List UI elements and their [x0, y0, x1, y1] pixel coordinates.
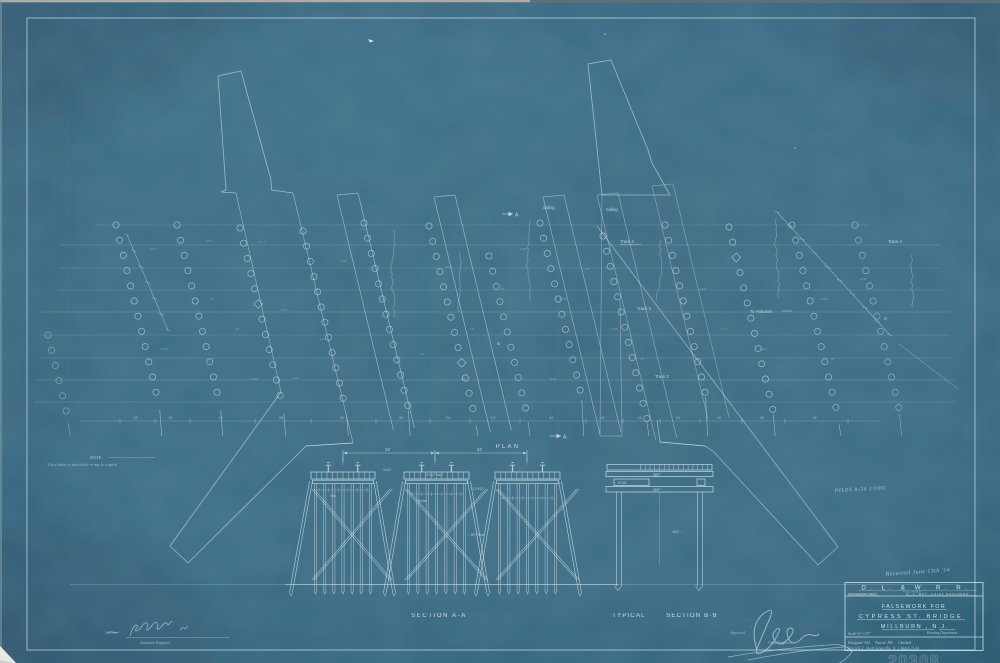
svg-text:3-6x8: 3-6x8	[160, 347, 168, 351]
svg-text:c to c: c to c	[360, 227, 368, 231]
svg-text:24′0″: 24′0″	[460, 377, 468, 381]
svg-text:16′: 16′	[830, 357, 834, 361]
svg-text:NOTE: NOTE	[89, 455, 102, 460]
svg-text:Track 3: Track 3	[637, 306, 651, 311]
svg-text:34': 34'	[549, 416, 554, 420]
svg-text:24′0″: 24′0″	[520, 247, 528, 251]
svg-text:20308: 20308	[888, 653, 940, 663]
svg-text:26': 26'	[717, 416, 722, 420]
svg-text:MILLBURN , N.J.: MILLBURN , N.J.	[881, 624, 949, 630]
svg-text:CYPRESS ST. BRIDGE: CYPRESS ST. BRIDGE	[859, 614, 963, 620]
svg-text:Track 2: Track 2	[655, 374, 669, 379]
svg-text:38′0″: 38′0″	[653, 473, 661, 477]
svg-text:Correct: Correct	[105, 631, 118, 635]
svg-text:24': 24'	[446, 416, 451, 420]
svg-text:Track 4: Track 4	[620, 239, 634, 244]
svg-text:16′: 16′	[235, 327, 239, 331]
svg-text:34′: 34′	[385, 447, 391, 452]
svg-text:8-30: 8-30	[550, 377, 557, 381]
svg-text:24′0″: 24′0″	[205, 239, 213, 243]
svg-text:5 sp: 5 sp	[330, 494, 336, 498]
svg-text:26': 26'	[279, 416, 284, 420]
svg-text:24′0″: 24′0″	[150, 247, 158, 251]
svg-text:Scale ⅜″=1′0″: Scale ⅜″=1′0″	[848, 632, 871, 636]
svg-text:8-30: 8-30	[560, 297, 567, 301]
svg-text:Chief Engineer: Chief Engineer	[768, 640, 793, 645]
svg-text:24': 24'	[638, 416, 643, 420]
svg-text:26': 26'	[340, 416, 345, 420]
svg-text:16′: 16′	[500, 287, 504, 291]
svg-text:West of E. L. North Jersey Div: West of E. L. North Jersey Div. N. J. Ma…	[847, 646, 919, 650]
svg-text:SECTION A-A: SECTION A-A	[411, 613, 467, 619]
svg-text:16′: 16′	[380, 297, 384, 301]
svg-text:8-30: 8-30	[860, 277, 867, 281]
svg-text:24': 24'	[813, 416, 818, 420]
svg-text:Track 4: Track 4	[888, 239, 902, 244]
svg-text:Carry timber or much better or: Carry timber or much better or may be re…	[48, 463, 117, 467]
svg-text:12″x12″ cap: 12″x12″ cap	[425, 473, 442, 477]
svg-text:24': 24'	[676, 416, 681, 420]
svg-text:24′0″: 24′0″	[320, 337, 328, 341]
svg-text:24′0″: 24′0″	[292, 376, 300, 380]
svg-text:Assistant Engineer: Assistant Engineer	[139, 640, 171, 645]
svg-text:24′0″: 24′0″	[340, 259, 348, 263]
svg-text:TYPICAL: TYPICAL	[612, 613, 645, 619]
svg-text:8″x16″: 8″x16″	[618, 481, 628, 485]
svg-text:Erecting Department: Erecting Department	[926, 631, 958, 635]
svg-text:24′0″: 24′0″	[445, 265, 453, 269]
svg-text:Approved: Approved	[729, 631, 745, 635]
svg-text:24′0″: 24′0″	[700, 287, 708, 291]
svg-text:G. J. RAY, CHIEF ENGINEER: G. J. RAY, CHIEF ENGINEER	[906, 592, 969, 596]
svg-text:3-6x8: 3-6x8	[610, 327, 618, 331]
svg-text:24': 24'	[169, 416, 174, 420]
svg-text:c to c: c to c	[258, 240, 266, 244]
svg-text:16′: 16′	[640, 357, 644, 361]
svg-text:16′: 16′	[470, 327, 474, 331]
svg-text:3-2″x12″: 3-2″x12″	[472, 487, 485, 491]
svg-text:16′: 16′	[210, 297, 214, 301]
svg-text:4′x12″: 4′x12″	[383, 468, 393, 472]
svg-text:24′0″: 24′0″	[760, 347, 768, 351]
svg-text:To Hoboken: To Hoboken	[750, 309, 773, 314]
svg-text:Siding: Siding	[606, 207, 618, 212]
svg-text:24': 24'	[491, 416, 496, 420]
svg-text:34′: 34′	[477, 447, 483, 452]
svg-text:24': 24'	[601, 416, 606, 420]
svg-text:B: B	[884, 316, 887, 321]
svg-text:16′: 16′	[420, 352, 424, 356]
svg-text:c to c: c to c	[720, 327, 728, 331]
svg-text:PLAN: PLAN	[496, 444, 520, 450]
svg-text:SECTION B-B: SECTION B-B	[666, 613, 718, 619]
svg-text:FALSEWORK FOR: FALSEWORK FOR	[882, 604, 946, 610]
svg-text:26': 26'	[760, 416, 765, 420]
svg-text:→ 30′ Piles: → 30′ Piles	[466, 533, 484, 537]
svg-text:35′0″: 35′0″	[280, 308, 288, 312]
svg-text:Designed AJS Traced P.B.: Designed AJS Traced P.B. Checked	[847, 641, 911, 645]
svg-text:24': 24'	[134, 416, 139, 420]
svg-text:8 piles: 8 piles	[418, 499, 428, 503]
svg-text:26': 26'	[399, 416, 404, 420]
svg-text:B: B	[497, 341, 500, 346]
svg-text:Siding: Siding	[543, 205, 555, 210]
svg-text:3-6x8: 3-6x8	[250, 377, 258, 381]
svg-text:16′: 16′	[585, 267, 589, 271]
svg-text:3-6x8: 3-6x8	[820, 297, 828, 301]
svg-text:16′0 →: 16′0 →	[672, 530, 683, 534]
svg-text:36′0″: 36′0″	[653, 488, 661, 492]
svg-text:ENGINEERING DEPT.: ENGINEERING DEPT.	[848, 592, 877, 596]
